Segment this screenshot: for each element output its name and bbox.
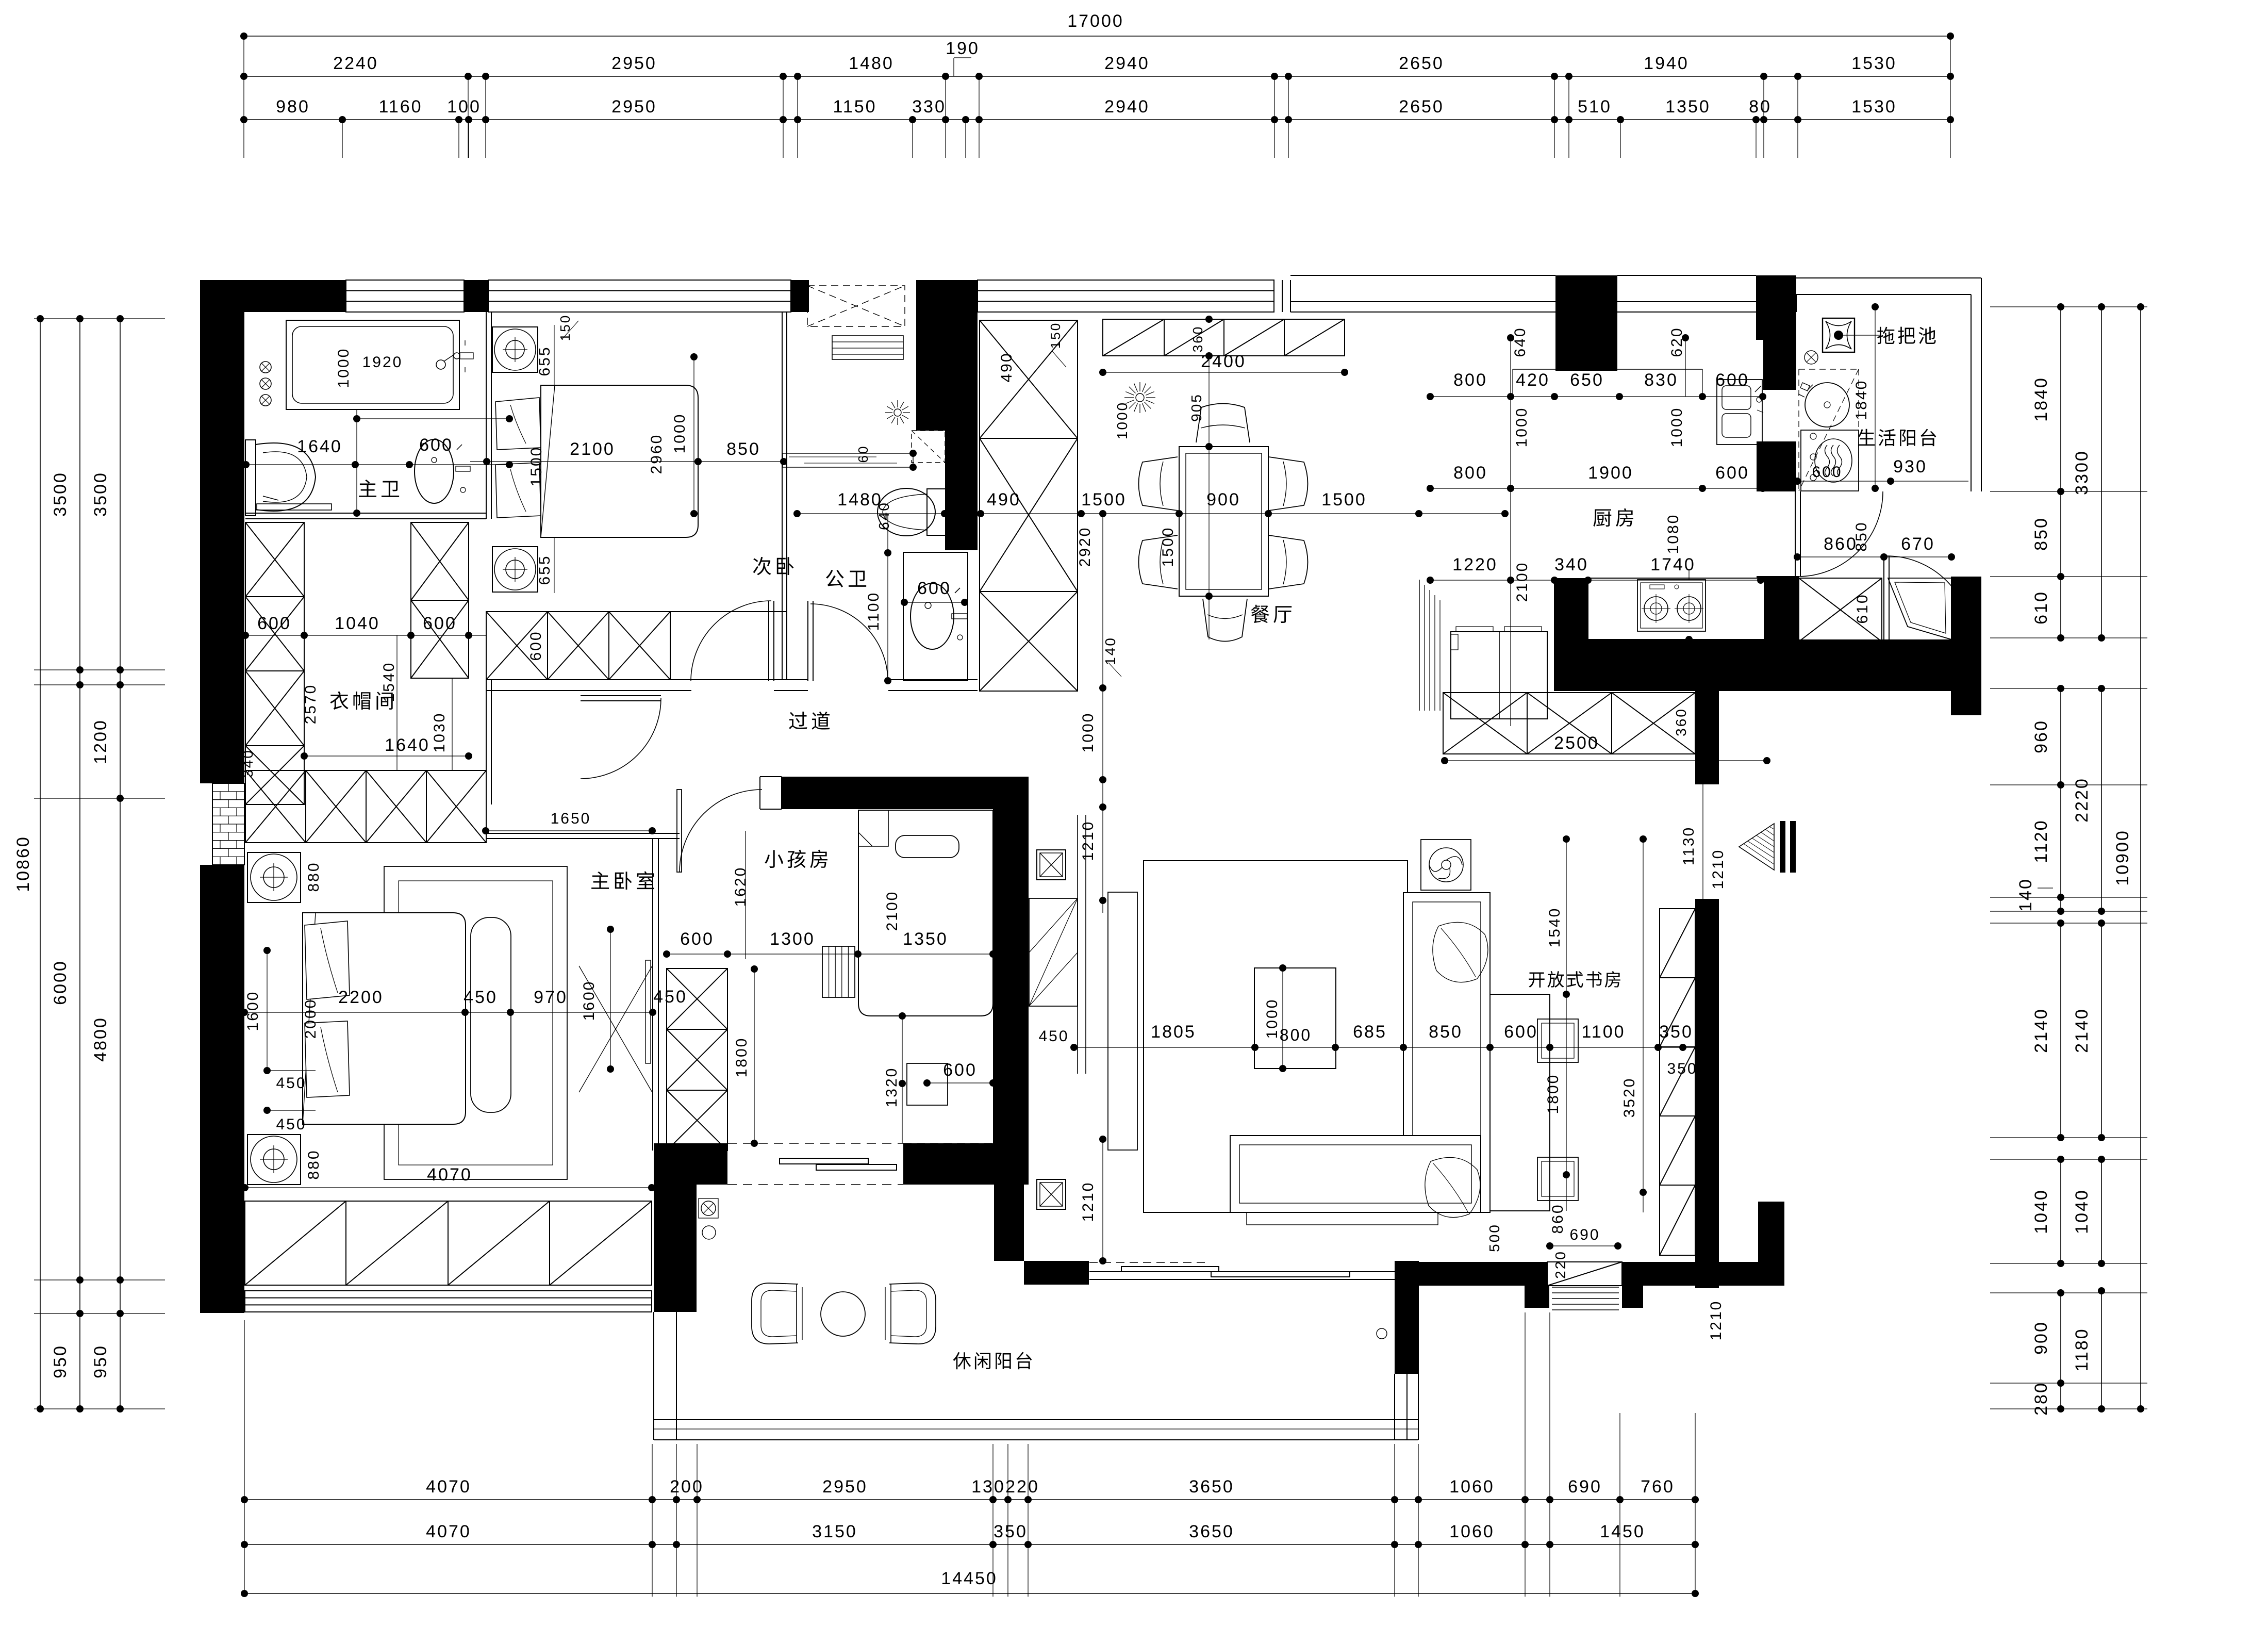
svg-text:2940: 2940 (1104, 97, 1150, 117)
svg-text:2100: 2100 (884, 891, 901, 931)
svg-text:2950: 2950 (611, 54, 657, 73)
svg-text:2960: 2960 (648, 434, 665, 474)
svg-text:60: 60 (855, 445, 871, 463)
svg-text:620: 620 (1668, 326, 1685, 357)
svg-text:1000: 1000 (1513, 407, 1530, 448)
svg-text:640: 640 (876, 501, 892, 530)
svg-text:1640: 1640 (385, 735, 430, 755)
svg-text:1540: 1540 (1546, 907, 1563, 948)
svg-text:6000: 6000 (51, 960, 70, 1005)
svg-text:3650: 3650 (1189, 1522, 1234, 1541)
svg-text:1800: 1800 (733, 1037, 750, 1078)
svg-text:150: 150 (557, 314, 573, 341)
svg-text:2240: 2240 (333, 54, 378, 73)
svg-text:150: 150 (1048, 322, 1063, 349)
svg-text:690: 690 (1569, 1226, 1600, 1243)
svg-text:17000: 17000 (1067, 11, 1124, 31)
svg-text:1210: 1210 (1080, 1181, 1097, 1222)
svg-text:200: 200 (670, 1477, 704, 1497)
svg-text:1800: 1800 (1545, 1074, 1562, 1114)
svg-text:1040: 1040 (2072, 1189, 2092, 1234)
svg-text:2220: 2220 (2072, 777, 2092, 823)
svg-text:1210: 1210 (1080, 820, 1097, 861)
svg-text:610: 610 (2031, 590, 2051, 625)
svg-text:600: 600 (419, 435, 453, 455)
svg-text:350: 350 (1667, 1060, 1697, 1077)
svg-text:850: 850 (726, 439, 760, 459)
svg-text:1920: 1920 (362, 354, 403, 371)
svg-text:860: 860 (1824, 534, 1858, 554)
svg-text:主卫: 主卫 (358, 479, 403, 501)
svg-text:1500: 1500 (1321, 490, 1367, 510)
svg-text:1000: 1000 (1668, 407, 1685, 448)
svg-text:3500: 3500 (51, 471, 70, 517)
svg-text:1805: 1805 (1151, 1022, 1196, 1042)
svg-text:3520: 3520 (1621, 1077, 1638, 1118)
svg-text:4800: 4800 (91, 1016, 110, 1062)
svg-text:450: 450 (276, 1075, 306, 1092)
svg-text:450: 450 (1038, 1028, 1069, 1045)
svg-text:1650: 1650 (551, 810, 591, 827)
svg-text:2140: 2140 (2031, 1008, 2051, 1053)
svg-text:过道: 过道 (788, 711, 834, 733)
svg-text:生活阳台: 生活阳台 (1857, 428, 1940, 449)
svg-text:1350: 1350 (1665, 97, 1711, 117)
svg-text:80: 80 (1749, 97, 1772, 117)
svg-text:220: 220 (1005, 1477, 1039, 1497)
svg-text:360: 360 (1190, 325, 1205, 352)
svg-text:1120: 1120 (2031, 819, 2051, 863)
svg-text:10900: 10900 (2113, 829, 2132, 886)
svg-text:690: 690 (1568, 1477, 1602, 1497)
svg-text:3300: 3300 (2072, 450, 2092, 495)
svg-text:10860: 10860 (13, 835, 33, 892)
svg-text:2950: 2950 (611, 97, 657, 117)
svg-text:100: 100 (447, 97, 481, 117)
svg-text:1900: 1900 (1588, 463, 1633, 483)
svg-text:800: 800 (1453, 370, 1487, 390)
svg-text:1620: 1620 (732, 866, 749, 907)
svg-text:1500: 1500 (1160, 527, 1177, 567)
svg-text:655: 655 (536, 346, 553, 376)
svg-text:330: 330 (912, 97, 946, 117)
svg-text:880: 880 (305, 1149, 322, 1179)
svg-text:800: 800 (1280, 1026, 1312, 1044)
svg-text:340: 340 (240, 749, 256, 778)
svg-text:拖把池: 拖把池 (1877, 325, 1939, 347)
svg-text:1150: 1150 (833, 97, 876, 117)
svg-text:950: 950 (91, 1344, 110, 1378)
svg-text:350: 350 (994, 1522, 1028, 1541)
svg-text:1000: 1000 (335, 348, 352, 388)
svg-text:1840: 1840 (2031, 376, 2051, 422)
svg-text:2500: 2500 (1554, 733, 1599, 753)
svg-text:1530: 1530 (1851, 54, 1897, 73)
svg-text:970: 970 (534, 988, 568, 1007)
svg-text:450: 450 (276, 1116, 306, 1133)
svg-text:1480: 1480 (849, 54, 894, 73)
svg-text:1100: 1100 (865, 592, 882, 631)
svg-text:1600: 1600 (581, 980, 598, 1021)
svg-text:640: 640 (1512, 326, 1529, 357)
svg-text:1540: 1540 (380, 662, 398, 702)
svg-text:1060: 1060 (1449, 1477, 1495, 1497)
svg-text:670: 670 (1901, 534, 1935, 554)
svg-text:2200: 2200 (338, 988, 384, 1007)
svg-text:1040: 1040 (335, 614, 380, 633)
svg-text:1320: 1320 (883, 1067, 900, 1108)
svg-text:休闲阳台: 休闲阳台 (953, 1351, 1035, 1372)
svg-text:3650: 3650 (1189, 1477, 1234, 1497)
svg-text:190: 190 (946, 39, 980, 58)
svg-text:500: 500 (1486, 1223, 1502, 1252)
svg-text:2140: 2140 (2072, 1008, 2092, 1053)
svg-text:140: 140 (2016, 878, 2035, 912)
svg-text:1000: 1000 (1080, 712, 1097, 753)
svg-text:655: 655 (536, 554, 553, 585)
svg-text:340: 340 (1554, 555, 1588, 574)
svg-text:280: 280 (2031, 1382, 2051, 1416)
svg-text:600: 600 (680, 929, 714, 949)
svg-text:1080: 1080 (1665, 514, 1682, 554)
svg-text:小孩房: 小孩房 (764, 849, 832, 871)
svg-text:厨房: 厨房 (1593, 508, 1638, 530)
svg-text:1840: 1840 (1853, 380, 1870, 420)
svg-text:2000: 2000 (302, 998, 319, 1039)
svg-text:1200: 1200 (91, 719, 110, 764)
svg-text:1600: 1600 (244, 991, 261, 1031)
svg-text:1640: 1640 (297, 437, 342, 456)
svg-text:220: 220 (1552, 1250, 1568, 1279)
svg-text:490: 490 (998, 352, 1015, 382)
svg-text:900: 900 (1206, 490, 1240, 510)
svg-text:850: 850 (1853, 521, 1870, 551)
svg-text:685: 685 (1353, 1022, 1387, 1042)
svg-text:4070: 4070 (426, 1477, 471, 1497)
svg-text:450: 450 (653, 987, 687, 1007)
svg-text:880: 880 (305, 861, 322, 892)
svg-text:1740: 1740 (1650, 555, 1696, 574)
svg-text:360: 360 (1673, 708, 1689, 736)
svg-text:140: 140 (1102, 636, 1118, 665)
svg-text:600: 600 (257, 614, 291, 633)
svg-text:950: 950 (51, 1344, 70, 1378)
svg-text:2100: 2100 (570, 439, 615, 459)
svg-text:公卫: 公卫 (825, 569, 870, 590)
svg-text:2950: 2950 (822, 1477, 868, 1497)
svg-text:开放式书房: 开放式书房 (1528, 971, 1624, 990)
svg-text:1530: 1530 (1851, 97, 1897, 117)
svg-text:2100: 2100 (1514, 562, 1531, 602)
svg-text:600: 600 (527, 630, 544, 661)
svg-text:600: 600 (1812, 464, 1842, 481)
svg-text:3150: 3150 (812, 1522, 857, 1541)
svg-text:600: 600 (1715, 370, 1749, 390)
svg-text:1100: 1100 (1581, 1022, 1625, 1042)
svg-text:1000: 1000 (1114, 401, 1130, 439)
svg-text:850: 850 (2031, 517, 2051, 551)
svg-text:490: 490 (987, 490, 1021, 510)
svg-text:760: 760 (1641, 1477, 1675, 1497)
svg-text:2920: 2920 (1077, 527, 1094, 567)
svg-text:1350: 1350 (903, 929, 948, 949)
svg-text:900: 900 (2031, 1321, 2051, 1355)
svg-text:1060: 1060 (1449, 1522, 1495, 1541)
svg-text:600: 600 (423, 614, 457, 633)
svg-text:850: 850 (1429, 1022, 1463, 1042)
svg-text:420: 420 (1516, 370, 1550, 390)
svg-text:1040: 1040 (2031, 1189, 2051, 1234)
svg-text:980: 980 (276, 97, 310, 117)
svg-text:1210: 1210 (1708, 1300, 1725, 1341)
svg-text:600: 600 (1504, 1022, 1538, 1042)
svg-text:130: 130 (971, 1477, 1005, 1497)
svg-text:510: 510 (1578, 97, 1612, 117)
svg-text:4070: 4070 (427, 1165, 472, 1185)
svg-text:1030: 1030 (431, 712, 448, 753)
svg-text:4070: 4070 (426, 1522, 471, 1541)
svg-text:餐厅: 餐厅 (1250, 604, 1296, 626)
svg-text:960: 960 (2031, 719, 2051, 753)
svg-text:1300: 1300 (770, 929, 815, 949)
svg-text:1450: 1450 (1600, 1522, 1645, 1541)
svg-text:930: 930 (1893, 457, 1927, 477)
svg-text:14450: 14450 (941, 1569, 998, 1588)
svg-text:1220: 1220 (1452, 555, 1498, 574)
svg-text:450: 450 (463, 988, 498, 1007)
svg-text:600: 600 (917, 579, 951, 598)
svg-text:2650: 2650 (1399, 97, 1444, 117)
svg-text:650: 650 (1570, 370, 1604, 390)
svg-text:1000: 1000 (671, 413, 688, 454)
svg-text:2570: 2570 (302, 684, 319, 725)
svg-text:1180: 1180 (2072, 1327, 2092, 1371)
svg-text:800: 800 (1453, 463, 1487, 483)
svg-text:1210: 1210 (1710, 849, 1727, 890)
svg-text:2650: 2650 (1399, 54, 1444, 73)
svg-text:2940: 2940 (1104, 54, 1150, 73)
svg-text:1000: 1000 (1264, 998, 1281, 1039)
svg-text:860: 860 (1549, 1203, 1566, 1234)
svg-text:主卧室: 主卧室 (590, 871, 658, 893)
svg-text:1500: 1500 (1081, 490, 1127, 510)
svg-text:830: 830 (1644, 370, 1678, 390)
svg-text:3500: 3500 (91, 471, 110, 517)
svg-text:1130: 1130 (1680, 826, 1697, 866)
svg-text:1160: 1160 (378, 97, 422, 117)
svg-text:600: 600 (1715, 463, 1749, 483)
svg-text:610: 610 (1854, 593, 1871, 623)
svg-text:次卧: 次卧 (752, 556, 798, 578)
svg-text:1940: 1940 (1644, 54, 1689, 73)
svg-text:1500: 1500 (528, 446, 545, 487)
svg-text:600: 600 (943, 1060, 977, 1080)
